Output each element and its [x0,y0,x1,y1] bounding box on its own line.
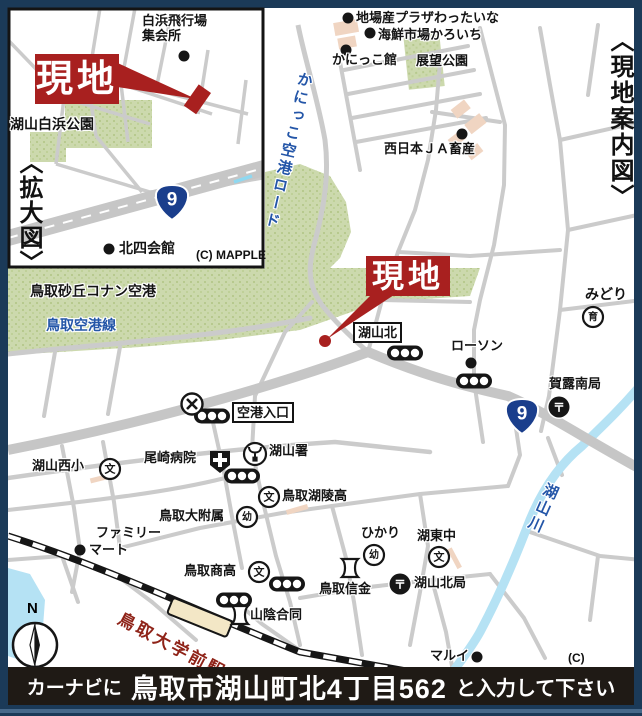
label-tottori-fuzoku: 鳥取大附属 [159,509,224,523]
map-canvas: 文 文 文 文 幼 幼 育 〒 〒 [8,8,634,667]
label-marui: マルイ [430,649,469,663]
navi-address: 鳥取市湖山町北4丁目562 [131,667,447,706]
label-sanin-godo: 山陰合同 [250,608,302,622]
label-shoko-high: 鳥取商高 [184,564,236,578]
label-family-mart-1: ファミリー [96,526,161,540]
label-jibasan-plaza: 地場産プラザわったいな [356,11,499,25]
label-kaisen-ichiba: 海鮮市場かろいち [378,28,482,42]
frame-bottom-accent [0,709,642,713]
label-shirahama-airfield-1: 白浜飛行場 [142,14,207,28]
label-koyama-kita: 湖山北 [353,322,402,343]
svg-text:文: 文 [254,565,266,579]
inset-kitayon-dot [104,244,115,255]
nursery-icon: 育 [583,307,603,327]
svg-text:9: 9 [517,404,528,425]
inset-map [8,8,264,268]
label-airport-line: 鳥取空港線 [46,318,116,333]
label-karo-minami-post: 賀露南局 [549,377,601,391]
label-midori: みどり [585,287,627,302]
label-koyama-nishi-elem: 湖山西小 [32,459,84,473]
label-koyama-police: 湖山署 [269,444,308,458]
svg-text:文: 文 [434,550,446,564]
label-family-mart-2: マート [89,543,128,557]
hospital-icon [210,451,230,473]
label-lawson: ローソン [451,339,503,353]
label-hikari: ひかり [361,526,400,540]
map-screenshot: 文 文 文 文 幼 幼 育 〒 〒 [0,0,642,716]
label-ozaki-hospital: 尾崎病院 [144,451,196,465]
label-airport-entrance: 空港入口 [232,402,294,423]
copyright-inset: (C) MAPPLE [196,248,266,262]
map-guide-title: 〈現地案内図〉 [602,28,637,210]
svg-text:9: 9 [167,190,178,211]
svg-text:文: 文 [264,490,276,504]
navi-prefix: カーナビに [27,673,122,700]
svg-text:文: 文 [105,462,117,476]
label-nishinihon-ja: 西日本ＪＡ畜産 [384,142,475,156]
compass [13,623,57,667]
label-koyama-shirahama-park: 湖山白浜公園 [10,117,94,132]
label-koyama-kita-post: 湖山北局 [414,576,466,590]
label-koto-junior: 湖東中 [417,529,456,543]
label-tenbo-park: 展望公園 [416,54,468,68]
svg-text:幼: 幼 [369,548,379,561]
label-tottori-shinkin: 鳥取信金 [319,582,371,596]
route9-shield-main: 9 [506,399,538,434]
label-kitayon-hall: 北四会館 [119,241,175,256]
fire-station-icon [244,443,266,465]
site-dot [319,335,331,347]
label-koryo-high: 鳥取湖陵高 [282,489,347,503]
koyama-river [450,386,640,676]
label-conan-airport: 鳥取砂丘コナン空港 [30,284,156,299]
inset-map-title: 〈拡大図〉 [11,150,46,275]
label-kanikko-kan: かにっこ館 [332,53,397,67]
label-shirahama-airfield-2: 集会所 [142,29,181,43]
svg-text:〒: 〒 [394,578,406,592]
school-icons: 文 文 文 文 [100,459,449,582]
site-label-inset: 現地 [35,54,119,104]
inset-hall-dot [179,51,190,62]
compass-north-label: N [27,600,38,617]
navi-address-bar: カーナビに 鳥取市湖山町北4丁目562 と入力して下さい [8,667,634,705]
navi-suffix: と入力して下さい [456,672,615,701]
map-graphics: 文 文 文 文 幼 幼 育 〒 〒 [0,0,642,716]
svg-text:〒: 〒 [553,401,565,415]
svg-text:育: 育 [588,310,598,323]
svg-text:幼: 幼 [242,510,252,523]
site-label-main: 現地 [366,256,450,296]
police-box-icon [182,394,203,415]
